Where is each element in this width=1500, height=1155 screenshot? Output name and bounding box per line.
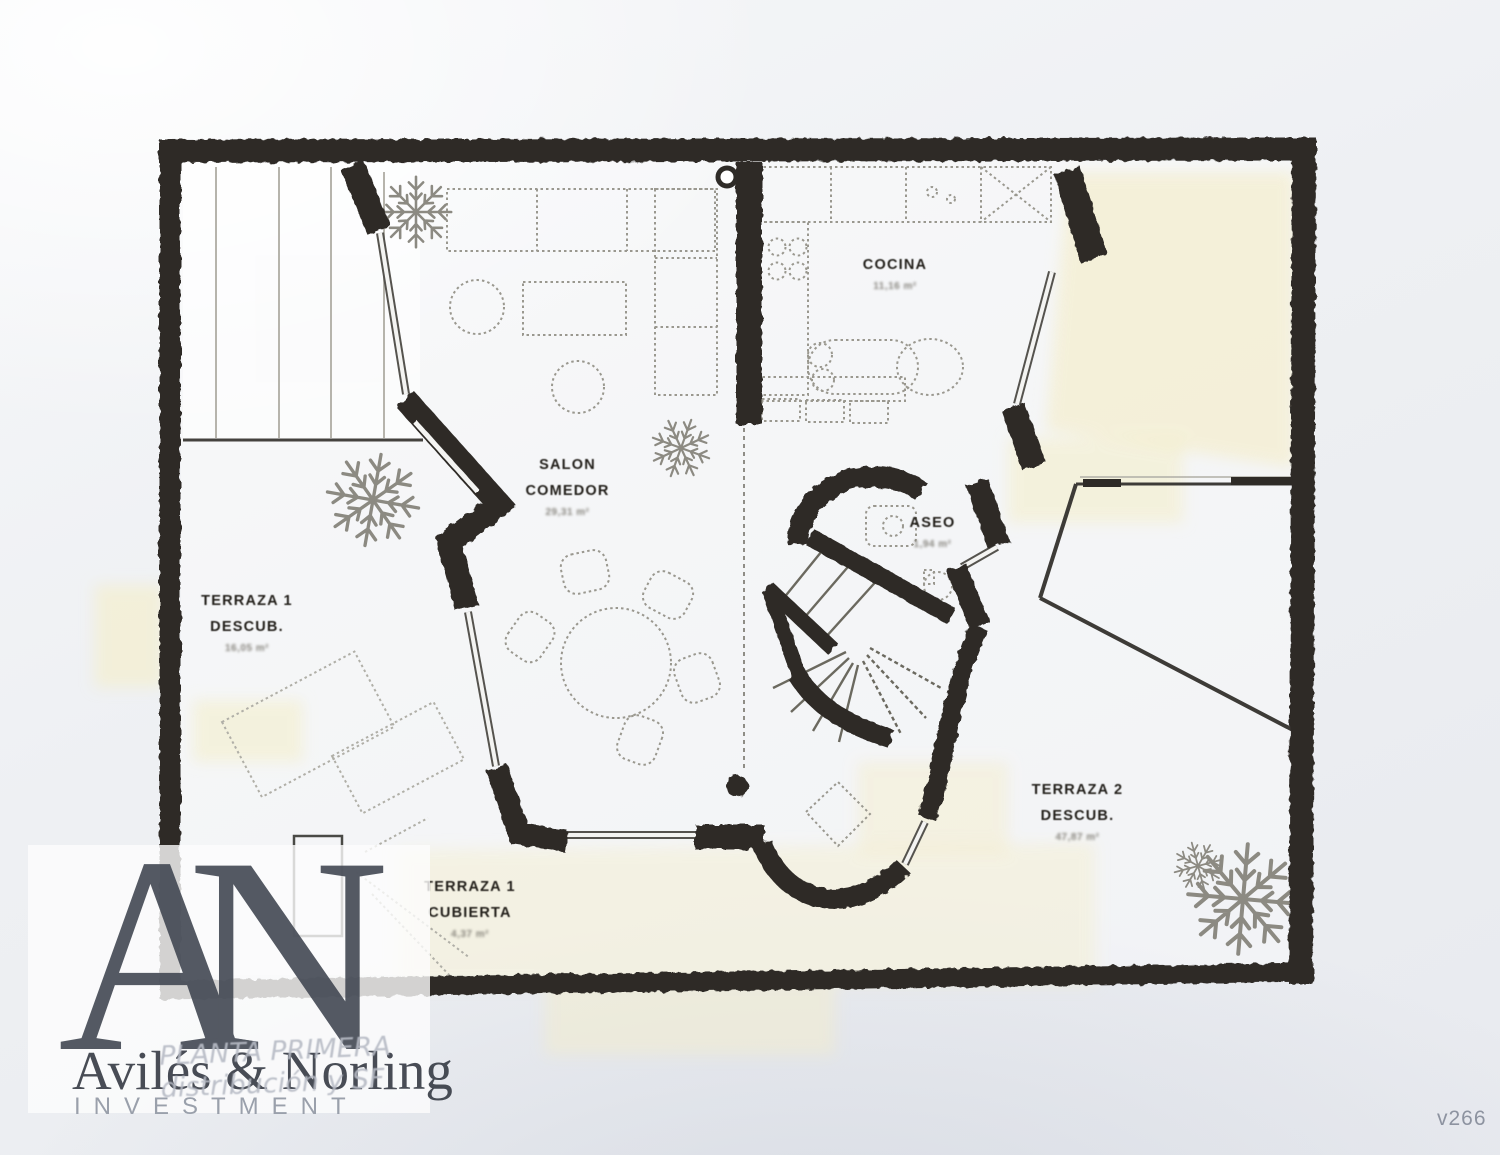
- room-name-line2: DESCUB.: [1041, 808, 1115, 824]
- room-name-line2: COMEDOR: [525, 483, 609, 499]
- room-area: 16,05 m²: [172, 640, 322, 658]
- room-label-salon-comedor: SALON COMEDOR 29,31 m²: [505, 452, 630, 522]
- room-area: 29,31 m²: [505, 504, 630, 522]
- room-label-cocina: COCINA 11,16 m²: [845, 252, 945, 296]
- plan-caption: PLANTA PRIMERA distribución y SF: [159, 1031, 392, 1105]
- room-area: 47,87 m²: [1000, 829, 1155, 847]
- room-name-line2: CUBIERTA: [428, 905, 511, 921]
- room-name-line2: DESCUB.: [210, 619, 284, 635]
- room-area: 11,16 m²: [845, 278, 945, 296]
- room-name-line1: TERRAZA 1: [424, 879, 516, 895]
- scanned-floorplan-page: COCINA 11,16 m² SALON COMEDOR 29,31 m² A…: [0, 0, 1500, 1155]
- room-name: COCINA: [863, 257, 927, 273]
- room-area: 1,94 m²: [895, 536, 970, 554]
- room-name-line1: SALON: [539, 457, 596, 473]
- version-tag: v266: [1437, 1107, 1487, 1131]
- room-name-line1: TERRAZA 1: [201, 593, 293, 609]
- room-label-terraza-1: TERRAZA 1 DESCUB. 16,05 m²: [172, 588, 322, 658]
- room-label-aseo: ASEO 1,94 m²: [895, 510, 970, 554]
- room-label-terraza-2: TERRAZA 2 DESCUB. 47,87 m²: [1000, 777, 1155, 847]
- room-name-line1: TERRAZA 2: [1032, 782, 1124, 798]
- room-name: ASEO: [910, 515, 956, 531]
